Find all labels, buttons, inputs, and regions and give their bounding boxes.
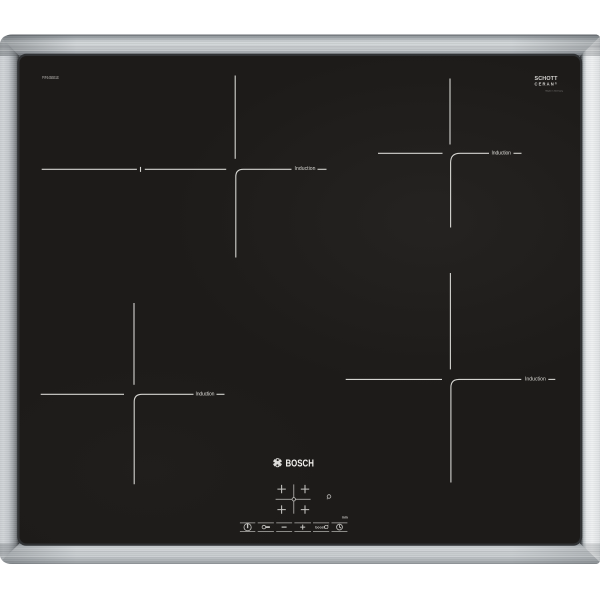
svg-text:Induction: Induction bbox=[492, 150, 512, 156]
svg-text:PIF645BB1E: PIF645BB1E bbox=[42, 75, 59, 80]
svg-text:boost: boost bbox=[315, 526, 325, 530]
svg-text:CERAN®: CERAN® bbox=[535, 81, 557, 86]
svg-text:Made in Germany: Made in Germany bbox=[546, 90, 564, 93]
svg-text:Induction: Induction bbox=[525, 377, 546, 383]
svg-text:Induction: Induction bbox=[295, 166, 316, 172]
svg-text:min: min bbox=[342, 515, 348, 519]
svg-text:BOSCH: BOSCH bbox=[286, 458, 314, 469]
svg-text:Induction: Induction bbox=[196, 391, 215, 397]
